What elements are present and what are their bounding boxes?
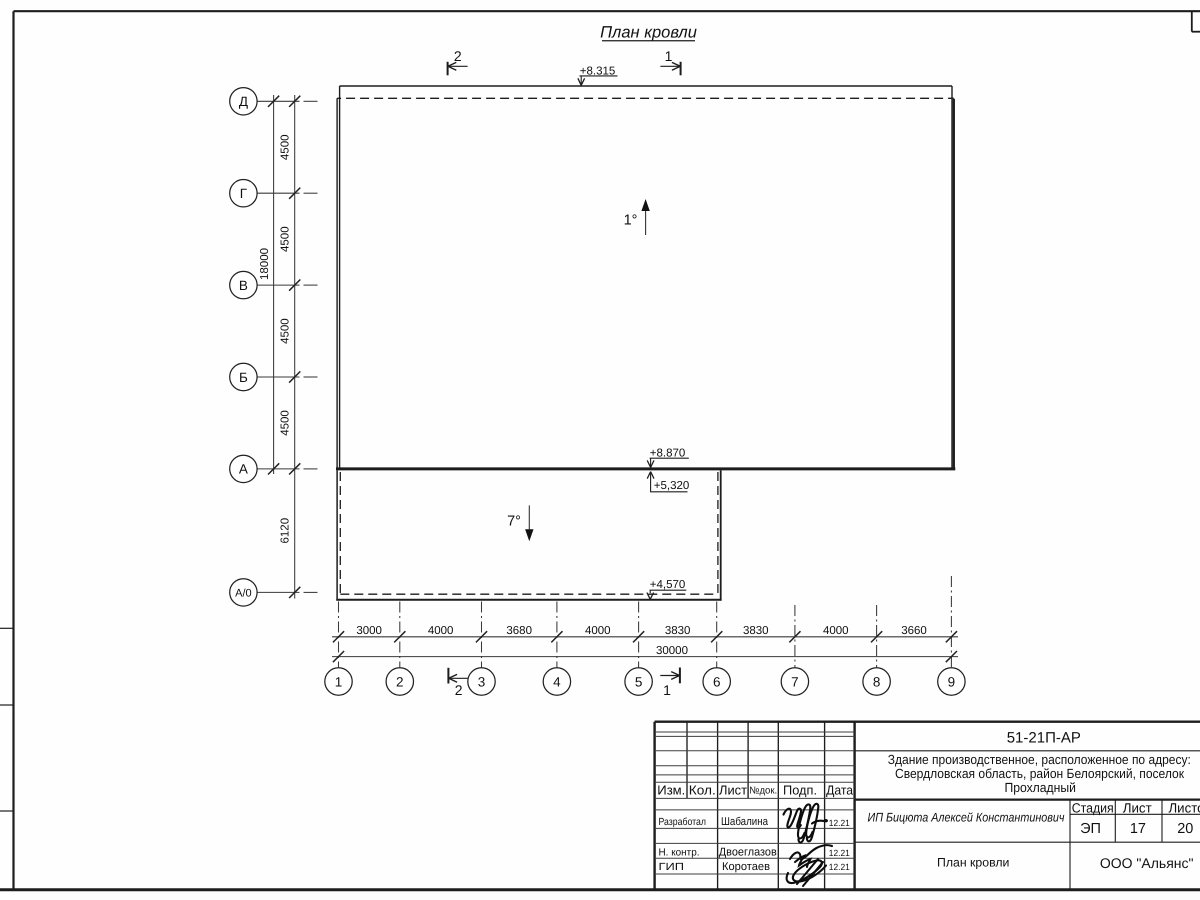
svg-text:4500: 4500 bbox=[280, 318, 292, 344]
svg-text:17: 17 bbox=[1130, 821, 1146, 837]
svg-text:ИП Бицюта Алексей Константинов: ИП Бицюта Алексей Константинович bbox=[868, 810, 1065, 824]
svg-text:12.21: 12.21 bbox=[829, 818, 850, 828]
svg-text:А/0: А/0 bbox=[235, 587, 252, 599]
svg-text:Шабалина: Шабалина bbox=[721, 816, 769, 828]
svg-text:4500: 4500 bbox=[280, 135, 292, 161]
svg-text:6120: 6120 bbox=[280, 518, 292, 544]
svg-text:№док.: №док. bbox=[749, 786, 777, 797]
svg-text:3830: 3830 bbox=[743, 625, 769, 637]
svg-text:Стадия: Стадия bbox=[1072, 801, 1114, 816]
svg-text:Б: Б bbox=[239, 370, 248, 385]
svg-text:Листов: Листов bbox=[1169, 801, 1200, 816]
svg-text:Лист: Лист bbox=[719, 782, 747, 797]
svg-text:4500: 4500 bbox=[280, 226, 292, 252]
svg-text:Двоеглазов: Двоеглазов bbox=[719, 847, 777, 859]
svg-text:3680: 3680 bbox=[506, 625, 532, 637]
svg-text:+4,570: +4,570 bbox=[650, 579, 686, 591]
svg-text:1: 1 bbox=[663, 682, 671, 698]
svg-text:А: А bbox=[239, 462, 248, 477]
svg-text:Прохладный: Прохладный bbox=[1004, 780, 1076, 795]
svg-text:Коротаев: Коротаев bbox=[722, 861, 770, 873]
svg-text:План кровли: План кровли bbox=[600, 24, 697, 42]
svg-text:Свердловская область, район Бе: Свердловская область, район Белоярский, … bbox=[895, 766, 1184, 781]
svg-text:7°: 7° bbox=[507, 514, 521, 530]
svg-text:6: 6 bbox=[713, 674, 721, 689]
svg-text:4000: 4000 bbox=[823, 625, 849, 637]
svg-text:ООО "Альянс": ООО "Альянс" bbox=[1100, 855, 1194, 871]
svg-text:ЭП: ЭП bbox=[1080, 821, 1101, 837]
svg-text:4000: 4000 bbox=[428, 625, 454, 637]
svg-text:Изм.: Изм. bbox=[657, 782, 685, 797]
svg-text:Здание производственное, распо: Здание производственное, расположенное п… bbox=[888, 752, 1191, 767]
svg-text:3660: 3660 bbox=[901, 625, 927, 637]
svg-text:12.21: 12.21 bbox=[829, 862, 850, 872]
svg-text:30000: 30000 bbox=[656, 645, 688, 657]
svg-text:+8.870: +8.870 bbox=[650, 447, 686, 459]
svg-text:5: 5 bbox=[635, 674, 643, 689]
svg-text:Кол.: Кол. bbox=[689, 782, 716, 797]
svg-text:2: 2 bbox=[454, 48, 462, 64]
svg-text:1: 1 bbox=[665, 48, 673, 64]
svg-text:2: 2 bbox=[396, 674, 404, 689]
svg-text:18000: 18000 bbox=[259, 248, 271, 280]
svg-text:Д: Д bbox=[239, 94, 248, 109]
svg-text:План кровли: План кровли bbox=[937, 855, 1010, 869]
svg-text:1: 1 bbox=[335, 674, 343, 689]
svg-text:4: 4 bbox=[553, 674, 561, 689]
svg-text:4000: 4000 bbox=[585, 625, 611, 637]
svg-text:4500: 4500 bbox=[280, 410, 292, 436]
svg-text:Г: Г bbox=[240, 186, 248, 201]
svg-text:2: 2 bbox=[455, 682, 463, 698]
svg-text:Н. контр.: Н. контр. bbox=[659, 847, 700, 858]
svg-text:Дата: Дата bbox=[826, 782, 854, 797]
svg-text:12.21: 12.21 bbox=[829, 848, 850, 858]
svg-text:51-21П-АР: 51-21П-АР bbox=[1007, 729, 1081, 746]
svg-text:Подп.: Подп. bbox=[783, 782, 817, 797]
svg-text:Разработал: Разработал bbox=[659, 817, 707, 828]
svg-text:ГИП: ГИП bbox=[659, 862, 685, 873]
svg-text:+5,320: +5,320 bbox=[654, 480, 690, 492]
svg-text:В: В bbox=[239, 278, 248, 293]
svg-text:7: 7 bbox=[791, 674, 799, 689]
svg-text:8: 8 bbox=[873, 674, 881, 689]
svg-text:9: 9 bbox=[948, 674, 956, 689]
svg-text:1°: 1° bbox=[624, 213, 638, 229]
svg-text:Лист: Лист bbox=[1123, 801, 1152, 816]
svg-text:3000: 3000 bbox=[356, 625, 382, 637]
svg-text:3830: 3830 bbox=[665, 625, 691, 637]
svg-text:20: 20 bbox=[1177, 821, 1193, 837]
svg-text:3: 3 bbox=[478, 674, 486, 689]
